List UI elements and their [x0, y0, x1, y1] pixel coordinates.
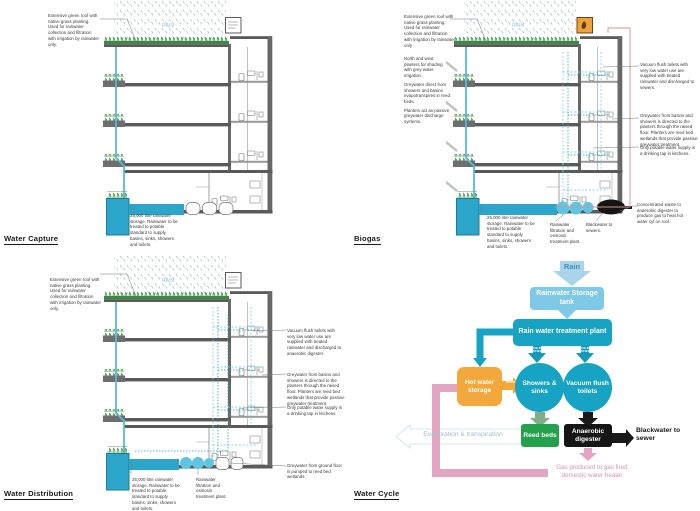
greywater-note: Greywater from basins and showers is dir…	[640, 113, 698, 147]
showers-sinks-node: Showers & sinks	[515, 363, 564, 412]
storage-note: 25,000 litre rainwater storage. Rainwate…	[130, 213, 178, 247]
leader-lines	[450, 19, 639, 221]
blackwater-note: Blackwater to sewers.	[586, 222, 616, 233]
treatment-plant-node: Rain water treatment plant	[513, 319, 612, 346]
vacuum-toilets-note: Vacuum flush toilets with very low water…	[287, 328, 343, 357]
planters-notes: North and west planters for shading with…	[404, 56, 450, 128]
cold-water-label-showers: COLD WATER	[529, 347, 545, 353]
reed-beds-node: Reed beds	[521, 424, 559, 447]
rain-node-label: Rain	[550, 263, 594, 272]
planters-evap-note: Greywater direct from showers and basins…	[404, 82, 450, 105]
planters-passive-note: Planters act as passive greywater discha…	[404, 108, 450, 125]
vacuum-flush-toilets-node: Vacuum flush toilets	[563, 363, 612, 412]
rainwater-storage-tank-node: Rainwater Storage tank	[530, 287, 604, 310]
blackwater-to-sewer-label: Blackwater to sewer	[636, 427, 696, 443]
hot-water-storage-node: Hot water storage	[457, 367, 502, 406]
panel-title-water-cycle: Water Cycle	[354, 489, 399, 500]
panel-title-water-capture: Water Capture	[4, 234, 58, 245]
digester-to-sewer-arrow	[612, 429, 634, 447]
panel-title-biogas: Biogas	[354, 234, 381, 245]
distribution-pipes	[135, 315, 228, 451]
gas-produced-label: Gas produced to gas fired domestic water…	[550, 464, 634, 480]
green-roof-note: Extensive green roof with native grass p…	[404, 14, 456, 48]
filtration-note: Rainwater filtration and osmosis treatme…	[196, 477, 228, 500]
cold-water-label-toilets: COLD WATER	[577, 347, 593, 353]
leader-lines	[100, 274, 286, 475]
anaerobic-digester-node: Anaerobic digester	[564, 424, 612, 447]
greywater-note: Greywater from basins and showers is dir…	[287, 372, 345, 406]
potable-note: Only potable water supply is a drinking …	[640, 145, 696, 156]
green-roof-note: Extensive green roof with native grass p…	[50, 277, 102, 311]
filtration-note: Rainwater filtration and osmosis treatme…	[550, 222, 582, 245]
ground-floor-note: Greywater from ground floor is pumped to…	[287, 463, 345, 480]
treatment-to-hot-pipe	[480, 332, 516, 359]
storage-note: 25,000 litre rainwater storage. Rainwate…	[132, 477, 180, 511]
potable-note: Only potable water supply is a drinking …	[287, 405, 343, 416]
storage-to-treatment-arrow	[558, 310, 576, 319]
evaporation-transpiration-label: Evaporation & transpiration	[408, 431, 518, 439]
storage-note: 25,000 litre rainwater storage. Rainwate…	[487, 215, 535, 249]
vacuum-toilets-note: Vacuum flush toilets with very low water…	[640, 62, 696, 91]
planters-shading-note: North and west planters for shading with…	[404, 56, 450, 79]
green-roof-note: Extensive green roof with native grass p…	[48, 13, 100, 47]
water-systems-diagram: RAIN	[0, 0, 700, 511]
concentrated-waste-note: Concentrated waste to anaerobic digester…	[637, 202, 693, 225]
panel-title-water-distribution: Water Distribution	[4, 489, 73, 500]
treatment-to-hot-arrowhead	[473, 358, 487, 367]
